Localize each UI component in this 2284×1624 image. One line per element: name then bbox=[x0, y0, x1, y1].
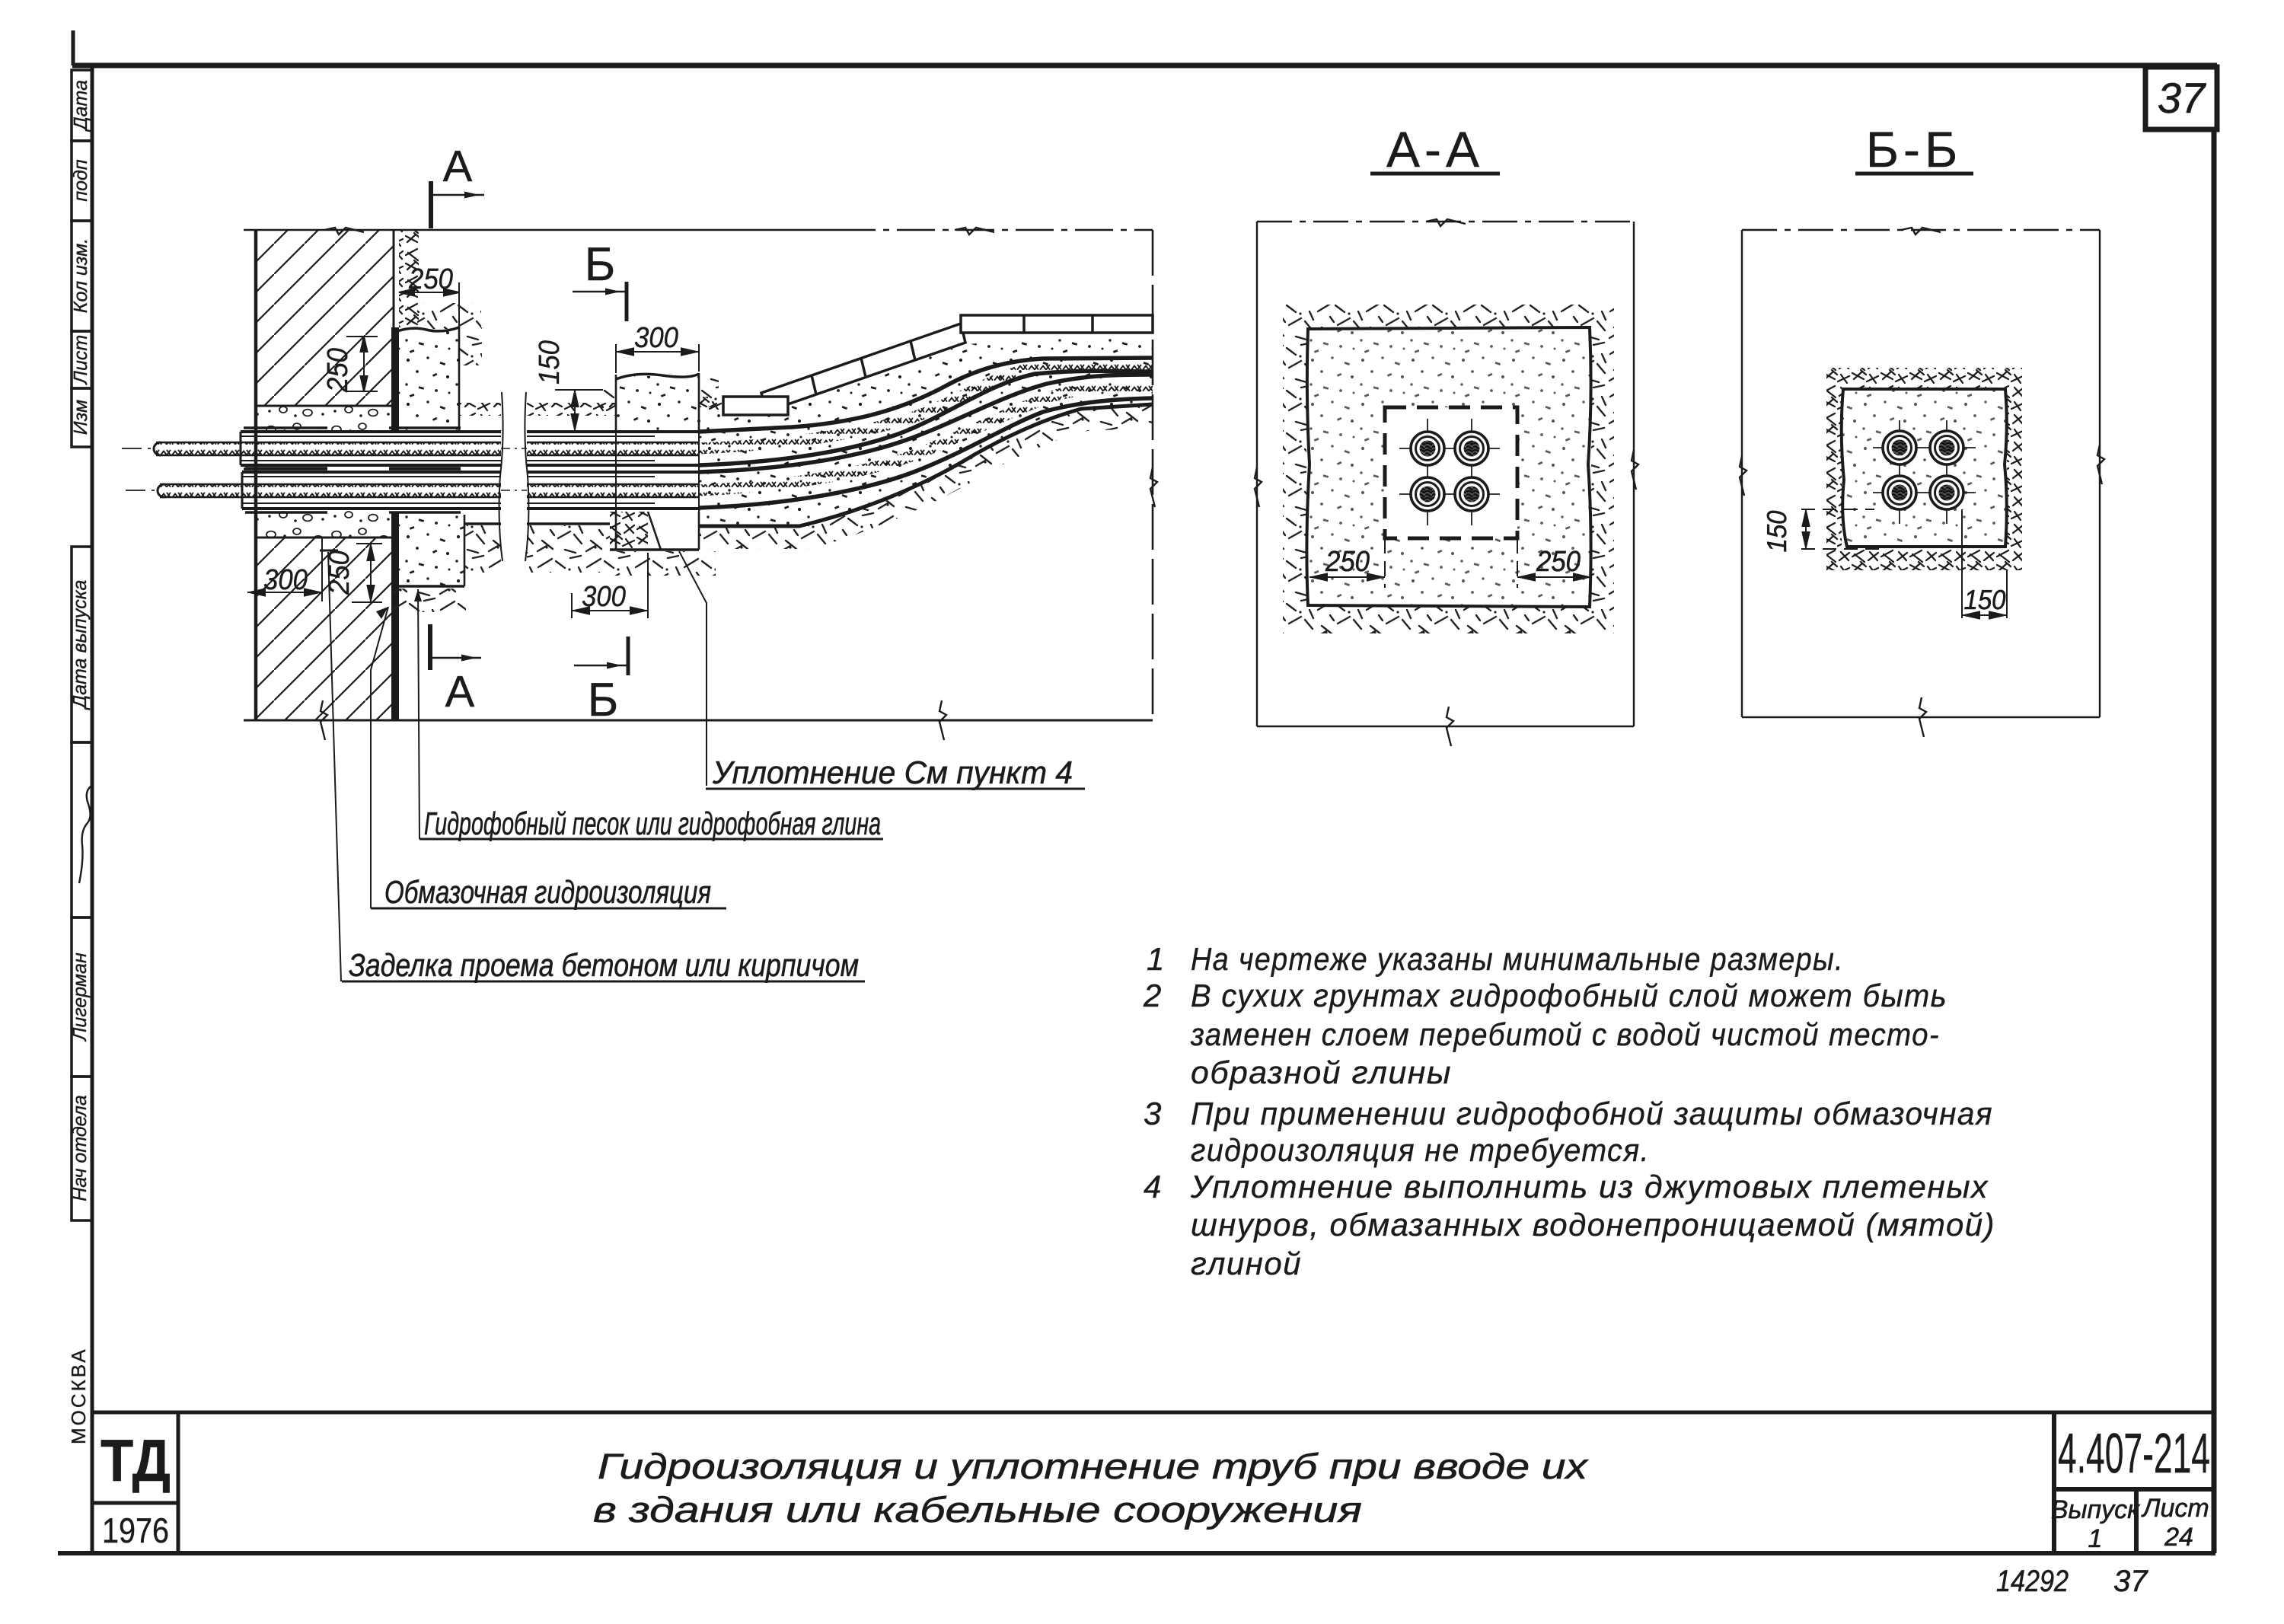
svg-text:24: 24 bbox=[2164, 1523, 2193, 1552]
svg-text:Уплотнение См пункт 4: Уплотнение См пункт 4 bbox=[712, 755, 1073, 790]
svg-text:образной глины: образной глины bbox=[1191, 1054, 1452, 1090]
svg-text:Уплотнение выполнить из дж: Уплотнение выполнить из джутовых плетены… bbox=[1190, 1169, 1989, 1204]
svg-text:Б: Б bbox=[585, 238, 616, 291]
svg-text:250: 250 bbox=[322, 348, 354, 393]
svg-text:Дата: Дата bbox=[70, 80, 91, 132]
svg-text:3: 3 bbox=[1144, 1096, 1163, 1131]
svg-text:150: 150 bbox=[1964, 584, 2006, 615]
svg-text:гидроизоляция не требуется.: гидроизоляция не требуется. bbox=[1191, 1132, 1650, 1168]
svg-text:Заделка проема бетоном или: Заделка проема бетоном или кирпичом bbox=[349, 947, 859, 983]
svg-text:Б: Б bbox=[588, 674, 619, 726]
svg-text:А-А: А-А bbox=[1386, 121, 1484, 177]
svg-text:250: 250 bbox=[1536, 546, 1581, 578]
svg-text:Изм: Изм bbox=[70, 400, 91, 435]
svg-text:Гидрофобный песок или гидрофоб: Гидрофобный песок или гидрофобная глина bbox=[424, 806, 881, 841]
svg-text:А: А bbox=[443, 142, 473, 191]
svg-text:МОСКВА: МОСКВА bbox=[67, 1347, 90, 1444]
svg-text:1976: 1976 bbox=[102, 1511, 169, 1550]
svg-text:шнуров, обмазанных водонепро: шнуров, обмазанных водонепроницаемой (мя… bbox=[1191, 1207, 1995, 1243]
svg-text:Нач отдела: Нач отдела bbox=[69, 1095, 91, 1201]
svg-text:2: 2 bbox=[1143, 978, 1163, 1013]
svg-text:Дата выпуска: Дата выпуска bbox=[69, 579, 91, 710]
svg-text:в здания или кабельные со: в здания или кабельные сооружения bbox=[593, 1489, 1362, 1530]
svg-text:Лист: Лист bbox=[2141, 1494, 2209, 1523]
svg-text:150: 150 bbox=[534, 340, 566, 384]
svg-text:Лигерман: Лигерман bbox=[69, 952, 91, 1042]
svg-text:Б-Б: Б-Б bbox=[1866, 121, 1963, 177]
svg-text:Лист: Лист bbox=[70, 335, 91, 385]
svg-text:При применении гидрофобной: При применении гидрофобной защиты обмазо… bbox=[1191, 1096, 1993, 1131]
svg-text:Кол изм.: Кол изм. bbox=[70, 238, 91, 313]
svg-text:подп: подп bbox=[70, 159, 91, 201]
svg-text:300: 300 bbox=[263, 564, 308, 596]
svg-text:На чертеже указаны минимальн: На чертеже указаны минимальные размеры. bbox=[1191, 941, 1844, 977]
svg-text:Гидроизоляция и уплотнение т: Гидроизоляция и уплотнение труб при ввод… bbox=[598, 1446, 1589, 1486]
svg-text:250: 250 bbox=[1325, 546, 1370, 578]
svg-text:В сухих грунтах гидрофобный: В сухих грунтах гидрофобный слой может б… bbox=[1191, 978, 1947, 1013]
svg-text:А: А bbox=[445, 667, 475, 716]
svg-text:300: 300 bbox=[634, 322, 678, 354]
svg-text:1: 1 bbox=[1147, 941, 1166, 977]
svg-text:150: 150 bbox=[1761, 511, 1792, 553]
svg-text:4: 4 bbox=[1144, 1169, 1163, 1204]
svg-text:4.407-214: 4.407-214 bbox=[2058, 1421, 2210, 1485]
svg-text:глиной: глиной bbox=[1191, 1246, 1302, 1281]
svg-text:1: 1 bbox=[2088, 1524, 2103, 1553]
svg-text:37: 37 bbox=[2158, 74, 2206, 122]
svg-text:37: 37 bbox=[2113, 1565, 2148, 1598]
svg-text:ТД: ТД bbox=[100, 1427, 171, 1494]
svg-text:300: 300 bbox=[582, 581, 626, 613]
svg-text:250: 250 bbox=[408, 263, 453, 295]
svg-text:заменен слоем перебитой с в: заменен слоем перебитой с водой чистой т… bbox=[1190, 1016, 1940, 1052]
svg-text:14292: 14292 bbox=[1996, 1565, 2069, 1598]
svg-text:Выпуск: Выпуск bbox=[2051, 1495, 2141, 1524]
svg-text:Обмазочная гидроизоляция: Обмазочная гидроизоляция bbox=[384, 874, 711, 910]
